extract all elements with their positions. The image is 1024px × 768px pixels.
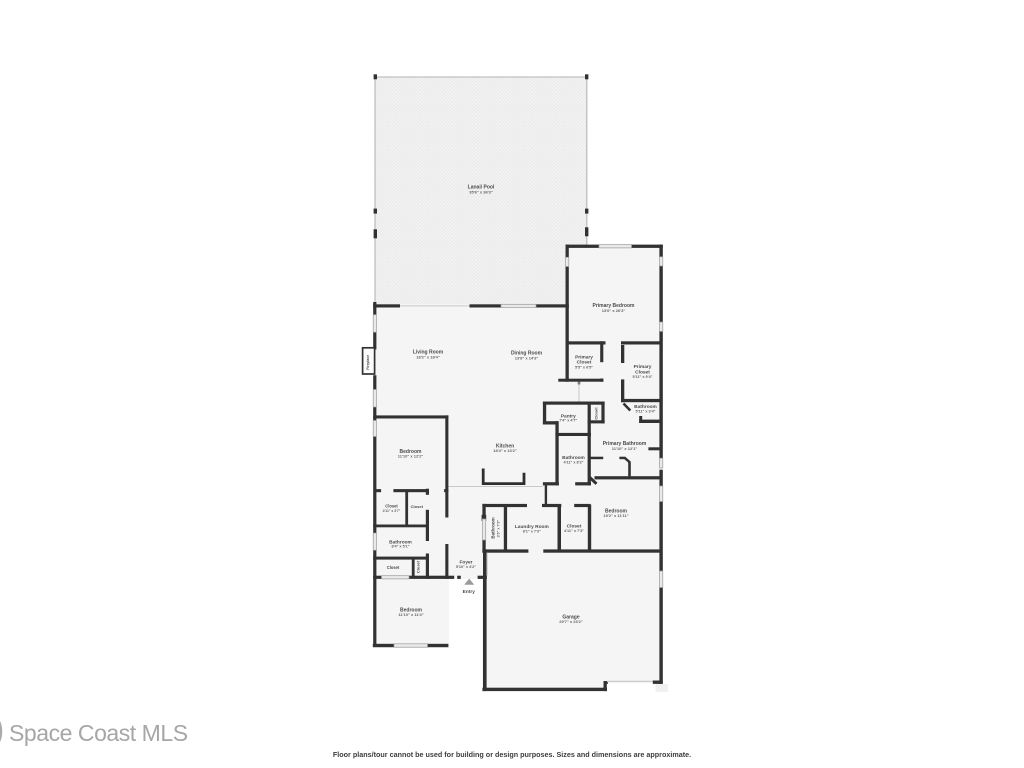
svg-text:4'11" x 7'3": 4'11" x 7'3" [564,529,584,533]
svg-text:29'7" x 23'2": 29'7" x 23'2" [559,619,583,624]
svg-text:5'5" x 6'5": 5'5" x 6'5" [575,365,593,369]
svg-text:Closet: Closet [411,504,424,509]
svg-text:Closet: Closet [593,407,598,420]
svg-text:Fireplace: Fireplace [366,355,370,370]
svg-text:19'2" x 11'11": 19'2" x 11'11" [603,513,628,518]
svg-text:4'11" x 3'7": 4'11" x 3'7" [383,509,401,513]
svg-text:Entry: Entry [463,589,476,595]
svg-text:Primary: Primary [575,354,593,360]
svg-text:11'10" x 12'1": 11'10" x 12'1" [612,446,638,451]
svg-text:18'2" x 18'4": 18'2" x 18'4" [416,355,440,360]
svg-text:Primary: Primary [634,364,652,370]
svg-text:Space Coast MLS: Space Coast MLS [9,720,188,746]
svg-text:5'10" x 4'2": 5'10" x 4'2" [456,565,476,569]
svg-text:Closet: Closet [387,565,400,570]
svg-text:11'10" x 11'4": 11'10" x 11'4" [398,612,423,617]
svg-text:13'8" x 14'3": 13'8" x 14'3" [515,356,539,361]
svg-text:3'3" x 7'3": 3'3" x 7'3" [497,520,501,538]
svg-text:8'4" x 5'1": 8'4" x 5'1" [391,545,409,549]
svg-text:Floor plans/tour cannot be use: Floor plans/tour cannot be used for buil… [333,750,691,759]
svg-text:11'10" x 12'2": 11'10" x 12'2" [398,454,424,459]
svg-text:13'6" x 26'3": 13'6" x 26'3" [602,308,626,313]
svg-text:18'4" x 13'2": 18'4" x 13'2" [493,448,517,453]
svg-text:8'1" x 7'3": 8'1" x 7'3" [523,529,541,533]
svg-text:35'6" x 36'3": 35'6" x 36'3" [469,190,493,195]
svg-text:5'11" x 9'4": 5'11" x 9'4" [633,375,653,379]
svg-text:5'11" x 3'4": 5'11" x 3'4" [636,409,656,413]
svg-text:4'11" x 8'2": 4'11" x 8'2" [564,460,584,464]
svg-text:Closet: Closet [416,560,421,573]
svg-text:7'4" x 4'7": 7'4" x 4'7" [559,419,577,423]
svg-text:Bathroom: Bathroom [490,517,495,538]
